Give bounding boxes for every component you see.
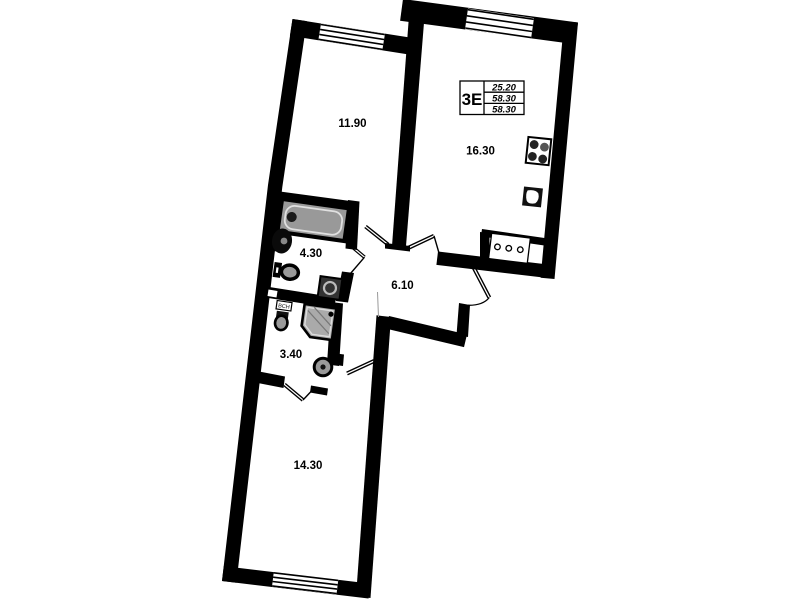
svg-text:11.90: 11.90 [338,118,366,130]
svg-text:3Е: 3Е [462,90,483,109]
svg-text:4.30: 4.30 [300,248,322,260]
svg-text:16.30: 16.30 [466,146,495,158]
svg-text:58.30: 58.30 [492,94,516,105]
svg-text:14.30: 14.30 [294,460,323,472]
svg-text:58.30: 58.30 [492,105,516,116]
svg-text:3.40: 3.40 [280,349,302,361]
svg-text:6.10: 6.10 [391,280,413,292]
svg-text:25.20: 25.20 [491,83,516,94]
